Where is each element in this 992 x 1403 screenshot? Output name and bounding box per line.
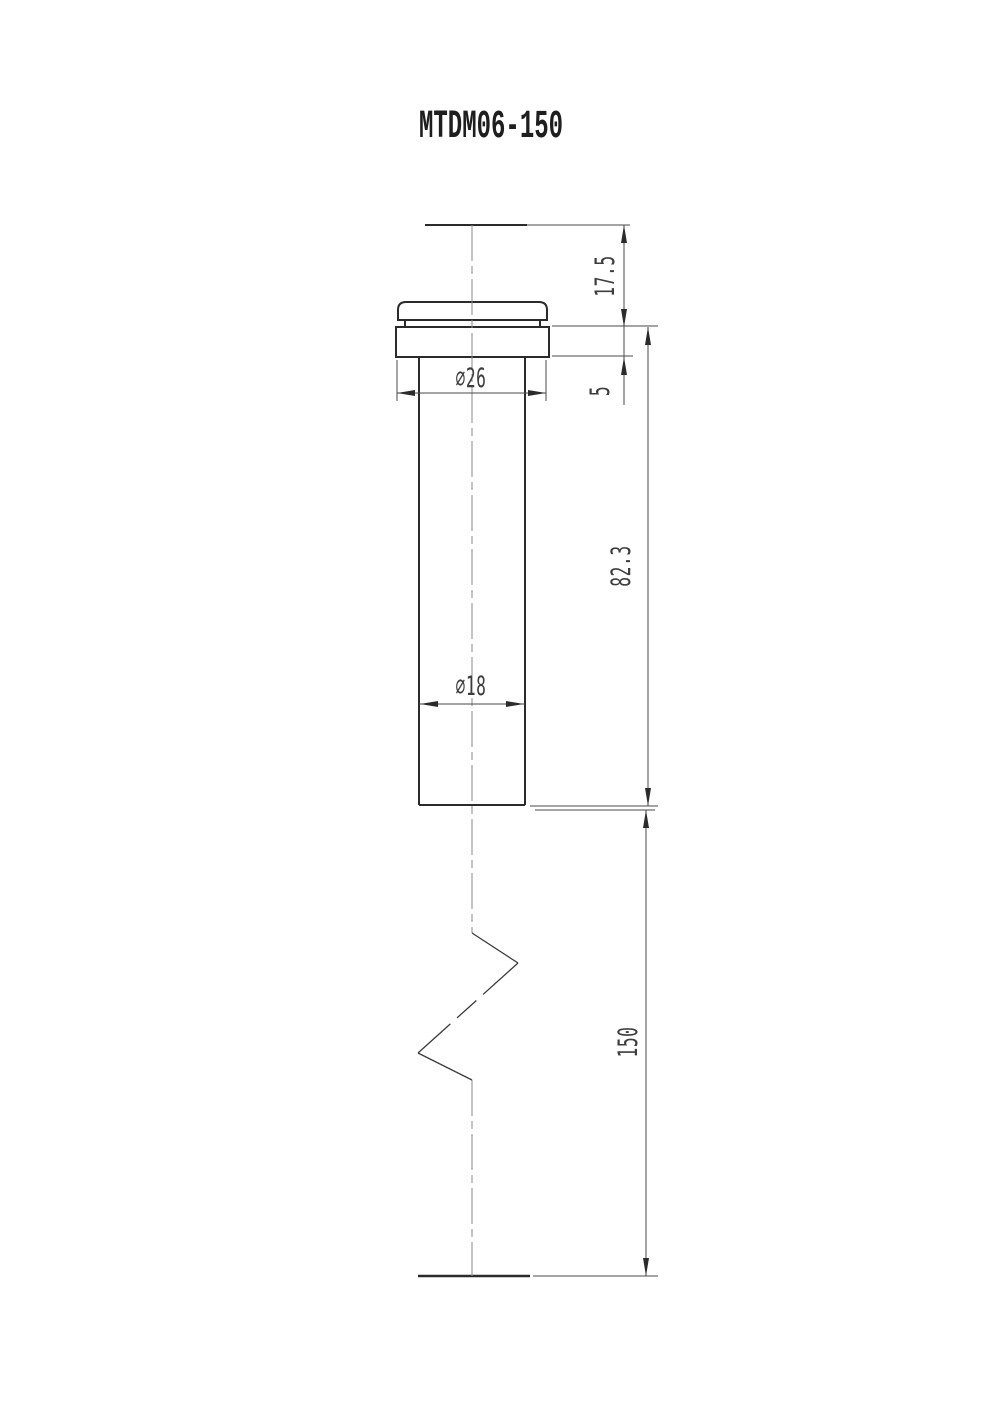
extension-lines bbox=[397, 225, 658, 1276]
dim-label-top-height: 17.5 bbox=[591, 246, 621, 306]
dim-label-body-diameter: ∅18 bbox=[441, 672, 501, 702]
arrow-up-5 bbox=[621, 357, 627, 375]
dim-label-flange-thickness: 5 bbox=[586, 361, 616, 421]
arrow-left-d18 bbox=[420, 701, 438, 707]
arrow-right-d18 bbox=[506, 701, 524, 707]
dim-label-flange-diameter: ∅26 bbox=[441, 364, 501, 394]
arrow-down-150 bbox=[643, 1258, 649, 1276]
break-segment-lower bbox=[418, 1053, 472, 1080]
drawing-sheet: MTDM06-150 17.5 5 82.3 150 ∅26 ∅18 bbox=[0, 0, 992, 1403]
arrow-down-82-3 bbox=[645, 788, 651, 806]
arrow-right-d26 bbox=[528, 390, 546, 396]
drawing-title: MTDM06-150 bbox=[419, 108, 539, 148]
arrow-up-17-5 bbox=[621, 225, 627, 243]
break-line bbox=[418, 933, 518, 1080]
break-segment-upper bbox=[472, 933, 518, 963]
arrow-up-82-3 bbox=[645, 327, 651, 345]
dim-label-overall-length: 150 bbox=[614, 1012, 644, 1072]
break-segment-middle bbox=[418, 963, 518, 1053]
arrow-down-17-5 bbox=[621, 309, 627, 327]
dim-label-body-length: 82.3 bbox=[607, 536, 637, 596]
arrow-left-d26 bbox=[397, 390, 415, 396]
arrow-up-150 bbox=[643, 810, 649, 828]
